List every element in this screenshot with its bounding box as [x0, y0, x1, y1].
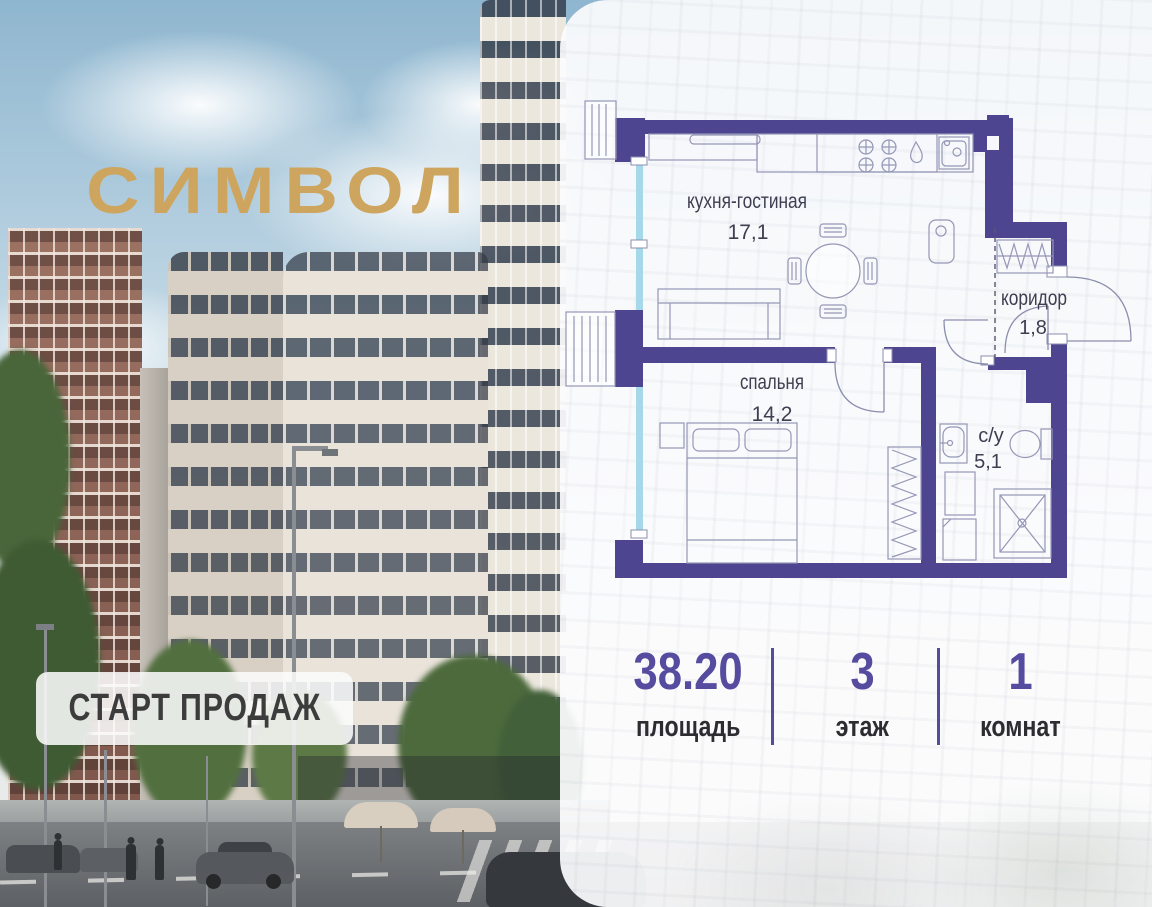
sales-badge-label: СТАРТ ПРОДАЖ — [68, 687, 320, 730]
walls — [615, 115, 1067, 578]
pedestrian-1 — [54, 840, 62, 870]
bedroom-door — [827, 349, 892, 412]
sedan-wheel-rear — [266, 874, 281, 889]
toilet-icon — [1010, 429, 1052, 459]
floor-plan: кухня-гостиная 17,1 спальня 14,2 коридор… — [560, 0, 1152, 640]
cafe-umbrella-1-pole — [380, 826, 382, 862]
corridor-door — [944, 320, 994, 365]
stats-divider-2 — [937, 648, 940, 745]
wardrobe-icon — [888, 447, 921, 559]
listing-card: СИМВОЛ СТАРТ ПРОДАЖ — [0, 0, 1152, 907]
sofa-icon — [658, 289, 780, 339]
kitchen-sink-icon — [939, 137, 969, 169]
bathroom-sink-icon — [940, 424, 967, 463]
room-area-bedroom: 14,2 — [752, 403, 793, 426]
room-label-kitchen-living: кухня-гостиная — [687, 190, 807, 213]
dining-table-icon — [788, 224, 877, 318]
rooms-value: 1 — [1008, 646, 1032, 698]
sedan-wheel-front — [206, 874, 221, 889]
stats-divider-1 — [771, 648, 774, 745]
project-logo: СИМВОЛ — [0, 152, 594, 228]
room-area-bathroom: 5,1 — [974, 451, 1002, 473]
shower-icon — [994, 489, 1051, 558]
apartment-card[interactable]: кухня-гостиная 17,1 спальня 14,2 коридор… — [560, 0, 1152, 907]
cafe-umbrella-2 — [430, 808, 496, 832]
streetlight-2-lamp — [36, 624, 54, 630]
water-drop-icon — [911, 142, 923, 162]
area-label: площадь — [636, 712, 740, 742]
pedestrian-3 — [155, 845, 164, 880]
parked-car-1 — [6, 845, 80, 873]
room-label-corridor: коридор — [1001, 287, 1067, 310]
bed-icon — [687, 423, 797, 563]
floor-label: этаж — [835, 712, 888, 742]
room-area-corridor: 1,8 — [1019, 317, 1047, 339]
washing-machine-icon — [943, 472, 976, 560]
pedestrian-2 — [126, 844, 136, 880]
balcony-unit-icon — [566, 101, 616, 386]
nightstand-icon — [660, 423, 684, 448]
kitchen-counter-icon — [649, 134, 973, 172]
cafe-umbrella-2-pole — [462, 830, 464, 864]
cafe-umbrella-1 — [344, 802, 418, 828]
rooms-label: комнат — [980, 712, 1061, 742]
water-heater-icon — [929, 220, 954, 263]
streetlight-tall-lamp — [322, 449, 338, 456]
pole-3 — [104, 750, 107, 907]
room-label-bathroom: с/у — [978, 425, 1004, 447]
room-label-bedroom: спальня — [740, 371, 804, 394]
area-value: 38.20 — [633, 646, 742, 698]
floor-value: 3 — [850, 646, 874, 698]
coat-closet-icon — [997, 240, 1053, 273]
sales-badge: СТАРТ ПРОДАЖ — [36, 672, 353, 745]
room-area-kitchen-living: 17,1 — [728, 221, 769, 244]
stove-icon — [817, 134, 937, 172]
